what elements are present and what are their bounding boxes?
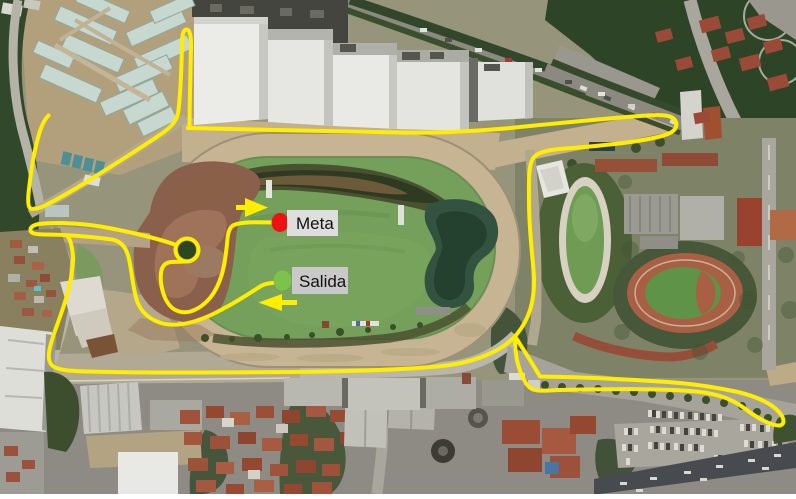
svg-text:Salida: Salida bbox=[299, 272, 347, 291]
svg-text:Meta: Meta bbox=[296, 214, 334, 233]
